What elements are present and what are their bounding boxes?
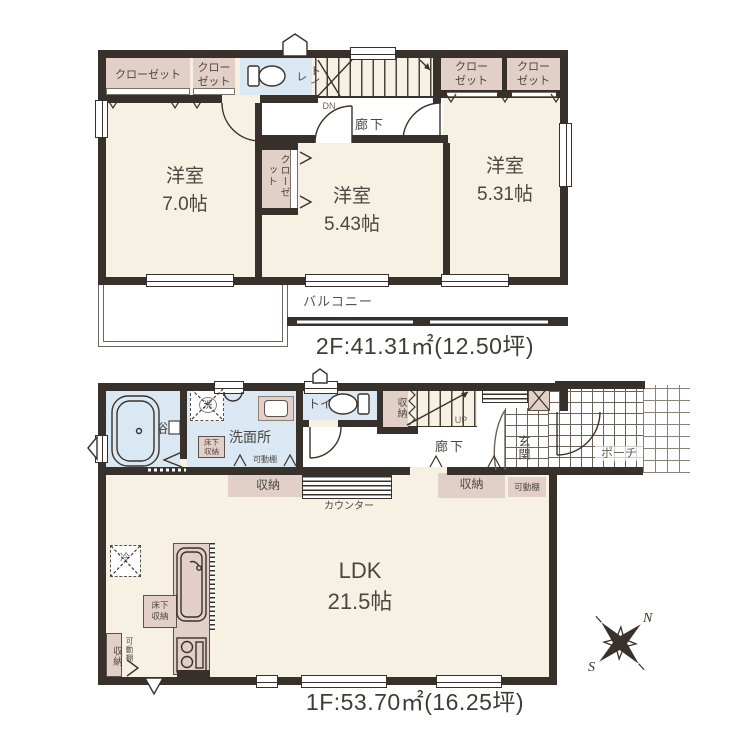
hallway-label: 廊下 — [420, 439, 480, 455]
window — [304, 381, 338, 394]
window — [350, 47, 396, 60]
kitchen-edge — [210, 543, 215, 631]
wall — [262, 135, 315, 143]
vanity-sink — [264, 400, 288, 417]
wall — [560, 383, 568, 411]
compass-rose — [575, 598, 665, 689]
wall — [255, 143, 298, 150]
toilet-label: トイレ — [306, 397, 346, 412]
underfloor-label: 床下 収納 — [199, 438, 224, 456]
entrance-label: 玄関 — [513, 428, 531, 468]
balcony-label: バルコニー — [283, 294, 393, 310]
toilet-label: トイレ — [293, 60, 321, 94]
washer-label: 洗 — [199, 397, 217, 413]
closet-label: クローゼット — [106, 69, 190, 83]
closet-label: クロー ゼット — [193, 62, 235, 90]
closet-door-strip — [512, 92, 556, 97]
balcony-railing-inner — [103, 285, 283, 342]
window — [95, 435, 108, 463]
wall — [447, 467, 557, 475]
compass-north-label: N — [642, 611, 653, 626]
wall — [549, 467, 557, 685]
shelf-label: 可動棚 — [508, 482, 546, 493]
compass-south-label: S — [588, 660, 595, 675]
fridge-label: 冷 — [115, 553, 135, 566]
wall — [296, 383, 303, 475]
area-text-1f: 1F:53.70㎡(16.25坪) — [260, 688, 570, 717]
window — [301, 675, 387, 688]
floor-plan: クローゼット クロー ゼット トイレ DN 廊下 クロー ゼット クロー ゼット… — [0, 0, 745, 745]
storage-label: 収納 — [384, 390, 406, 426]
window — [559, 123, 572, 187]
wall — [106, 95, 222, 103]
porch-label: ポーチ — [595, 446, 643, 461]
wall — [260, 95, 318, 103]
counter-label: カウンター — [317, 501, 381, 514]
window — [305, 274, 389, 287]
stairs-dn-label: DN — [316, 101, 342, 112]
wall — [377, 427, 418, 434]
balcony-railing-slats — [430, 319, 548, 325]
kitchen-counter — [173, 543, 210, 675]
closet-label: クローゼット — [263, 153, 290, 199]
underfloor-label: 床下 収納 — [146, 600, 174, 622]
wall — [557, 467, 643, 475]
porch-tile-outer — [643, 385, 690, 473]
wall — [443, 143, 450, 285]
area-text-2f: 2F:41.31㎡(12.50坪) — [280, 332, 570, 361]
window — [256, 675, 278, 688]
wall — [98, 50, 106, 285]
wall — [255, 103, 262, 285]
wall — [98, 467, 304, 475]
room-label-west7: 洋室 7.0帖 — [130, 163, 240, 218]
wall — [98, 50, 568, 58]
counter — [302, 475, 392, 499]
wall — [303, 420, 309, 427]
window — [214, 381, 244, 394]
closet-label: クロー ゼット — [441, 61, 502, 89]
closet-label: クロー ゼット — [507, 61, 560, 89]
closet-door-strip — [447, 92, 497, 97]
window — [441, 274, 509, 287]
window — [436, 675, 502, 688]
wall — [255, 208, 298, 215]
room-label-west531: 洋室 5.31帖 — [450, 153, 560, 208]
wall — [98, 383, 106, 685]
storage-label: 収納 — [107, 638, 122, 674]
storage-label: 収納 — [438, 477, 505, 492]
room-label-west543: 洋室 5.43帖 — [297, 183, 407, 238]
bathroom-label: 浴室 — [146, 421, 190, 437]
storage-label: 収納 — [228, 478, 308, 493]
ldk-label: LDK 21.5帖 — [300, 556, 420, 618]
washroom-label: 洗面所 — [215, 429, 285, 447]
closet-door-strip — [106, 88, 190, 95]
wall — [352, 135, 448, 143]
wall — [304, 467, 410, 475]
balcony-railing-slats — [297, 319, 413, 325]
wall — [338, 420, 377, 427]
window — [95, 100, 108, 138]
stairs-2f — [315, 58, 433, 98]
shelf-label: 可動棚 — [122, 634, 134, 666]
stairs-up-label: UP — [448, 415, 474, 426]
shelf-label: 可動棚 — [248, 455, 282, 465]
wall — [177, 670, 210, 677]
wall — [555, 381, 645, 389]
hallway-label: 廊下 — [335, 117, 405, 133]
